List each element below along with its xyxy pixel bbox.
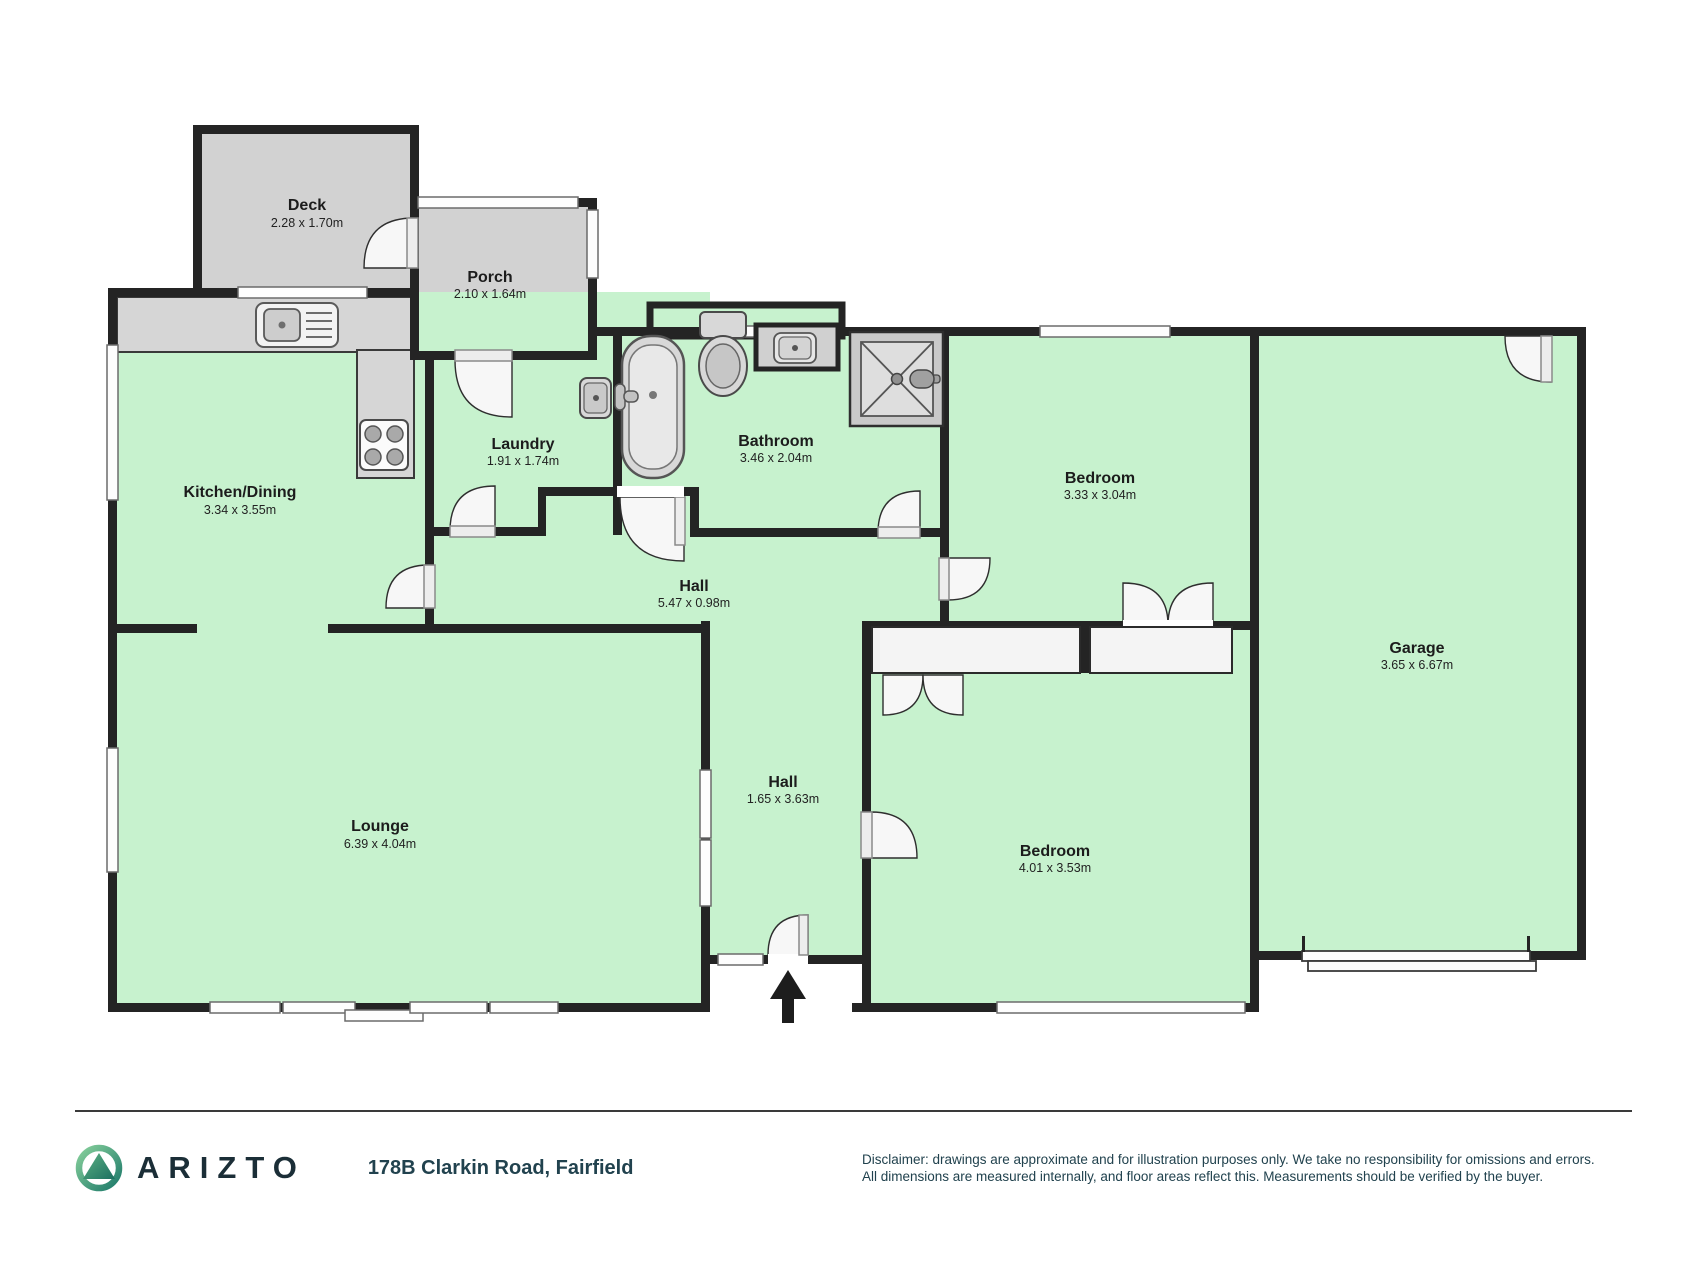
door-leaf (675, 497, 685, 545)
footer: ARIZTO 178B Clarkin Road, Fairfield Disc… (75, 1110, 1632, 1192)
floorplan-page: Deck 2.28 x 1.70m Porch 2.10 x 1.64m Kit… (0, 0, 1707, 1280)
room-label-hall-upper: Hall (679, 578, 708, 595)
room-dims-deck: 2.28 x 1.70m (271, 216, 343, 230)
property-address: 178B Clarkin Road, Fairfield (368, 1157, 634, 1180)
brand-name: ARIZTO (137, 1150, 306, 1186)
stove-fixture (360, 420, 408, 470)
room-dims-garage: 3.65 x 6.67m (1381, 658, 1453, 672)
disclaimer-text: Disclaimer: drawings are approximate and… (862, 1151, 1632, 1185)
window (210, 1002, 280, 1013)
door-leaf (450, 526, 495, 537)
window (283, 1002, 355, 1013)
disclaimer-line-2: All dimensions are measured internally, … (862, 1168, 1632, 1185)
window (1040, 326, 1170, 337)
door-leaf (861, 812, 872, 858)
room-dims-hall-lower: 1.65 x 3.63m (747, 792, 819, 806)
door-leaf (1541, 336, 1552, 382)
room-label-garage: Garage (1389, 640, 1444, 657)
window (107, 748, 118, 872)
brand-logo-block: ARIZTO (75, 1144, 306, 1192)
arizto-mountain-logo-icon (75, 1144, 123, 1192)
window (238, 287, 367, 298)
toilet-fixture (699, 312, 747, 396)
room-label-deck: Deck (288, 197, 326, 214)
door-leaf (424, 565, 435, 608)
hall-upper-floor (703, 530, 948, 628)
closet-box-bedroom2 (872, 627, 1080, 673)
room-dims-bathroom: 3.46 x 2.04m (740, 451, 812, 465)
room-label-porch: Porch (467, 269, 512, 286)
room-fills (112, 129, 1581, 1008)
room-label-bedroom-2: Bedroom (1020, 843, 1090, 860)
window (418, 197, 578, 208)
room-dims-kitchen: 3.34 x 3.55m (204, 503, 276, 517)
window (700, 840, 711, 906)
window (718, 954, 763, 965)
window (490, 1002, 558, 1013)
room-label-laundry: Laundry (491, 436, 554, 453)
window (107, 345, 118, 500)
room-label-bedroom-1: Bedroom (1065, 470, 1135, 487)
shower-fixture (850, 332, 943, 426)
door-leaf (455, 350, 512, 361)
window (587, 210, 598, 278)
room-dims-lounge: 6.39 x 4.04m (344, 837, 416, 851)
room-dims-bedroom-2: 4.01 x 3.53m (1019, 861, 1091, 875)
room-dims-hall-upper: 5.47 x 0.98m (658, 596, 730, 610)
room-dims-porch: 2.10 x 1.64m (454, 287, 526, 301)
closet-box-bedroom1 (1090, 627, 1232, 673)
door-leaf (407, 218, 418, 268)
room-dims-bedroom-1: 3.33 x 3.04m (1064, 488, 1136, 502)
laundry-sink-fixture (580, 378, 611, 418)
door-leaf (878, 527, 920, 538)
bathtub-fixture (615, 336, 684, 478)
floor-plan-svg: Deck 2.28 x 1.70m Porch 2.10 x 1.64m Kit… (0, 0, 1707, 1110)
disclaimer-line-1: Disclaimer: drawings are approximate and… (862, 1151, 1632, 1168)
room-label-hall-lower: Hall (768, 774, 797, 791)
vanity-sink-fixture (756, 325, 838, 369)
kitchen-sink-fixture (256, 303, 338, 347)
window (700, 770, 711, 838)
room-label-lounge: Lounge (351, 818, 409, 835)
window (997, 1002, 1245, 1013)
entry-arrow-icon (770, 970, 806, 1023)
door-gap (617, 486, 684, 497)
room-label-kitchen: Kitchen/Dining (184, 484, 297, 501)
door-leaf (939, 558, 949, 600)
door-leaf (799, 915, 808, 955)
room-label-bathroom: Bathroom (738, 433, 814, 450)
window (410, 1002, 487, 1013)
room-dims-laundry: 1.91 x 1.74m (487, 454, 559, 468)
